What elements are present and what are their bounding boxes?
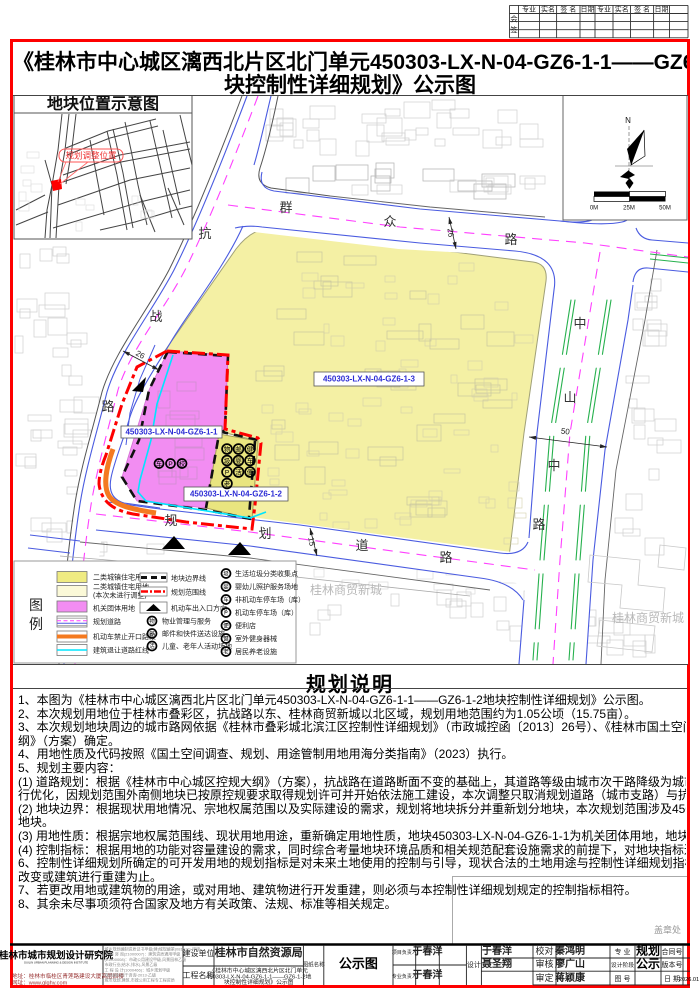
svg-text:版本号: 版本号 bbox=[662, 960, 683, 969]
svg-text:50: 50 bbox=[560, 427, 570, 437]
svg-text:450303-LX-N-04-GZ6-1-2: 450303-LX-N-04-GZ6-1-2 bbox=[190, 490, 283, 499]
svg-text:校对: 校对 bbox=[535, 945, 553, 956]
svg-text:于春洋: 于春洋 bbox=[413, 968, 443, 981]
svg-text:《桂林市中心城区漓西北片区北门单元: 《桂林市中心城区漓西北片区北门单元 bbox=[209, 967, 308, 975]
svg-text:路: 路 bbox=[439, 550, 452, 565]
svg-text:健: 健 bbox=[247, 444, 254, 453]
svg-text:工 程 咨 询(21000007)：建筑资质通用甲级: 工 程 咨 询(21000007)：建筑资质通用甲级 bbox=[105, 951, 181, 957]
svg-text:于春洋: 于春洋 bbox=[482, 944, 512, 957]
svg-text:图: 图 bbox=[29, 597, 43, 613]
svg-text:工 程 设 计(1000466)：城乡规划甲级: 工 程 设 计(1000466)：城乡规划甲级 bbox=[105, 966, 171, 972]
svg-text:专 业: 专 业 bbox=[615, 947, 631, 956]
svg-text:路: 路 bbox=[532, 517, 545, 532]
svg-text:物: 物 bbox=[224, 444, 231, 453]
svg-text:建设单位: 建设单位 bbox=[183, 948, 215, 958]
svg-text:签 名: 签 名 bbox=[560, 5, 576, 14]
svg-text:车: 车 bbox=[156, 459, 163, 468]
svg-text:路: 路 bbox=[504, 232, 517, 247]
svg-text:设计: 设计 bbox=[467, 960, 481, 969]
svg-text:群: 群 bbox=[279, 200, 292, 215]
svg-text:邮: 邮 bbox=[149, 629, 155, 637]
svg-text:婴: 婴 bbox=[235, 457, 242, 465]
svg-text:签: 签 bbox=[510, 25, 518, 35]
svg-text:城市规划,建筑,市政公用工程专工程资质: 城市规划,建筑,市政公用工程专工程资质 bbox=[105, 977, 175, 983]
svg-text:实名: 实名 bbox=[615, 5, 629, 14]
svg-text:中: 中 bbox=[573, 316, 586, 331]
svg-text:N: N bbox=[625, 116, 631, 125]
svg-text:26: 26 bbox=[445, 228, 455, 238]
svg-text:战: 战 bbox=[149, 309, 162, 324]
svg-text:活: 活 bbox=[235, 467, 242, 476]
svg-text:车: 车 bbox=[223, 595, 229, 603]
svg-text:便: 便 bbox=[223, 621, 229, 629]
svg-text:物: 物 bbox=[149, 617, 155, 625]
svg-text:生活垃圾分类收集点: 生活垃圾分类收集点 bbox=[235, 569, 298, 578]
svg-text:日期: 日期 bbox=[581, 6, 595, 14]
svg-text:设计阶段: 设计阶段 bbox=[611, 961, 634, 969]
svg-text:老: 老 bbox=[223, 647, 229, 655]
svg-text:专业: 专业 bbox=[597, 5, 611, 14]
svg-text:2026.01: 2026.01 bbox=[679, 977, 699, 983]
svg-text:秦鸿明: 秦鸿明 bbox=[554, 944, 585, 957]
svg-text:非机动车停车场（库）: 非机动车停车场（库） bbox=[235, 595, 305, 604]
svg-text:审定: 审定 bbox=[535, 972, 553, 983]
svg-text:P: P bbox=[224, 610, 228, 616]
svg-text:机动车停车场（库）: 机动车停车场（库） bbox=[235, 608, 298, 617]
svg-text:居民养老设施: 居民养老设施 bbox=[235, 647, 277, 656]
svg-text:会: 会 bbox=[510, 14, 518, 24]
svg-text:专业: 专业 bbox=[522, 5, 536, 14]
svg-text:桂林商贸新城: 桂林商贸新城 bbox=[612, 610, 684, 625]
svg-text:中: 中 bbox=[547, 458, 560, 473]
svg-text:圾: 圾 bbox=[223, 569, 229, 577]
svg-text:图 号: 图 号 bbox=[615, 975, 631, 983]
svg-text:机动车禁止开口路段: 机动车禁止开口路段 bbox=[93, 632, 156, 641]
svg-text:婴: 婴 bbox=[223, 583, 229, 590]
svg-text:车: 车 bbox=[247, 456, 254, 465]
svg-text:桂林商贸新城: 桂林商贸新城 bbox=[310, 582, 382, 597]
svg-text:物业管理与服务: 物业管理与服务 bbox=[162, 617, 211, 626]
svg-text:便利店: 便利店 bbox=[235, 621, 256, 630]
svg-text:老: 老 bbox=[224, 479, 231, 488]
svg-text:规划范围线: 规划范围线 bbox=[171, 588, 206, 597]
svg-text:日 期: 日 期 bbox=[664, 975, 680, 983]
svg-text:450303-LX-N-04-GZ6-1-1: 450303-LX-N-04-GZ6-1-1 bbox=[125, 428, 218, 437]
svg-text:图纸名称: 图纸名称 bbox=[303, 961, 326, 969]
svg-text:规划道路: 规划道路 bbox=[93, 617, 121, 626]
svg-text:网址：www.glghy.com: 网址：www.glghy.com bbox=[12, 979, 68, 987]
svg-text:市政行业(给水,排水),风景乙级: 市政行业(给水,排水),风景乙级 bbox=[105, 961, 158, 967]
svg-text:(21000008)：市政公用建设甲级,风景园林乙级: (21000008)：市政公用建设甲级,风景园林乙级 bbox=[105, 956, 187, 962]
svg-text:于春洋: 于春洋 bbox=[413, 945, 443, 958]
svg-text:地块边界线: 地块边界线 bbox=[171, 574, 206, 583]
svg-text:GUILIN URBAN PLANNING & DESIGN: GUILIN URBAN PLANNING & DESIGN INSTITUTE bbox=[24, 961, 88, 965]
svg-text:便: 便 bbox=[247, 467, 254, 476]
svg-text:P: P bbox=[168, 461, 172, 468]
svg-text:规划调整位置: 规划调整位置 bbox=[65, 151, 117, 161]
svg-text:例: 例 bbox=[29, 616, 43, 632]
svg-text:规: 规 bbox=[164, 513, 177, 528]
svg-text:路: 路 bbox=[101, 399, 114, 414]
svg-text:合同号: 合同号 bbox=[662, 947, 683, 956]
svg-text:众: 众 bbox=[383, 214, 396, 229]
svg-text:抗: 抗 bbox=[198, 226, 211, 241]
svg-text:签 名: 签 名 bbox=[634, 5, 650, 14]
svg-text:桂林市自然资源局: 桂林市自然资源局 bbox=[214, 945, 303, 959]
svg-text:日期: 日期 bbox=[655, 6, 669, 14]
svg-text:邮件和快件送达设施: 邮件和快件送达设施 bbox=[162, 629, 225, 638]
svg-text:婴幼儿照护服务场地: 婴幼儿照护服务场地 bbox=[235, 582, 298, 591]
svg-text:健: 健 bbox=[223, 634, 229, 642]
svg-text:划: 划 bbox=[258, 526, 271, 541]
svg-text:公示图: 公示图 bbox=[339, 956, 378, 971]
svg-text:公示: 公示 bbox=[636, 957, 660, 971]
svg-text:审核: 审核 bbox=[535, 958, 553, 969]
svg-text:聂圣翔: 聂圣翔 bbox=[481, 957, 512, 970]
svg-text:活: 活 bbox=[149, 642, 155, 650]
svg-text:邮: 邮 bbox=[235, 444, 242, 453]
svg-text:地块位置示意图: 地块位置示意图 bbox=[47, 95, 159, 113]
svg-text:0M: 0M bbox=[590, 206, 598, 212]
svg-text:圾: 圾 bbox=[224, 457, 231, 465]
svg-text:50M: 50M bbox=[659, 206, 671, 212]
svg-text:机关团体用地: 机关团体用地 bbox=[93, 604, 135, 613]
svg-text:廖广山: 廖广山 bbox=[555, 957, 585, 970]
svg-text:规划: 规划 bbox=[636, 942, 660, 957]
svg-text:山: 山 bbox=[563, 390, 576, 405]
svg-text:450303-LX-N-04-GZ6-1-3: 450303-LX-N-04-GZ6-1-3 bbox=[323, 375, 416, 384]
svg-text:机动车出入口方向: 机动车出入口方向 bbox=[171, 604, 227, 613]
svg-text:蒋颖康: 蒋颖康 bbox=[555, 971, 586, 984]
svg-text:规划编制园干咨询-2013·乙级: 规划编制园干咨询-2013·乙级 bbox=[105, 972, 157, 978]
svg-text:块控制性详细规划》公示图: 块控制性详细规划》公示图 bbox=[224, 978, 294, 986]
svg-text:道: 道 bbox=[355, 538, 368, 553]
svg-text:25M: 25M bbox=[623, 206, 635, 212]
svg-text:实名: 实名 bbox=[541, 5, 555, 14]
svg-text:P: P bbox=[225, 469, 229, 476]
svg-text:建筑退让道路红线: 建筑退让道路红线 bbox=[93, 646, 149, 655]
svg-text:室外健身器械: 室外健身器械 bbox=[235, 634, 277, 643]
svg-text:校: 校 bbox=[179, 459, 186, 468]
svg-text:(本次未进行调整): (本次未进行调整) bbox=[93, 591, 147, 600]
